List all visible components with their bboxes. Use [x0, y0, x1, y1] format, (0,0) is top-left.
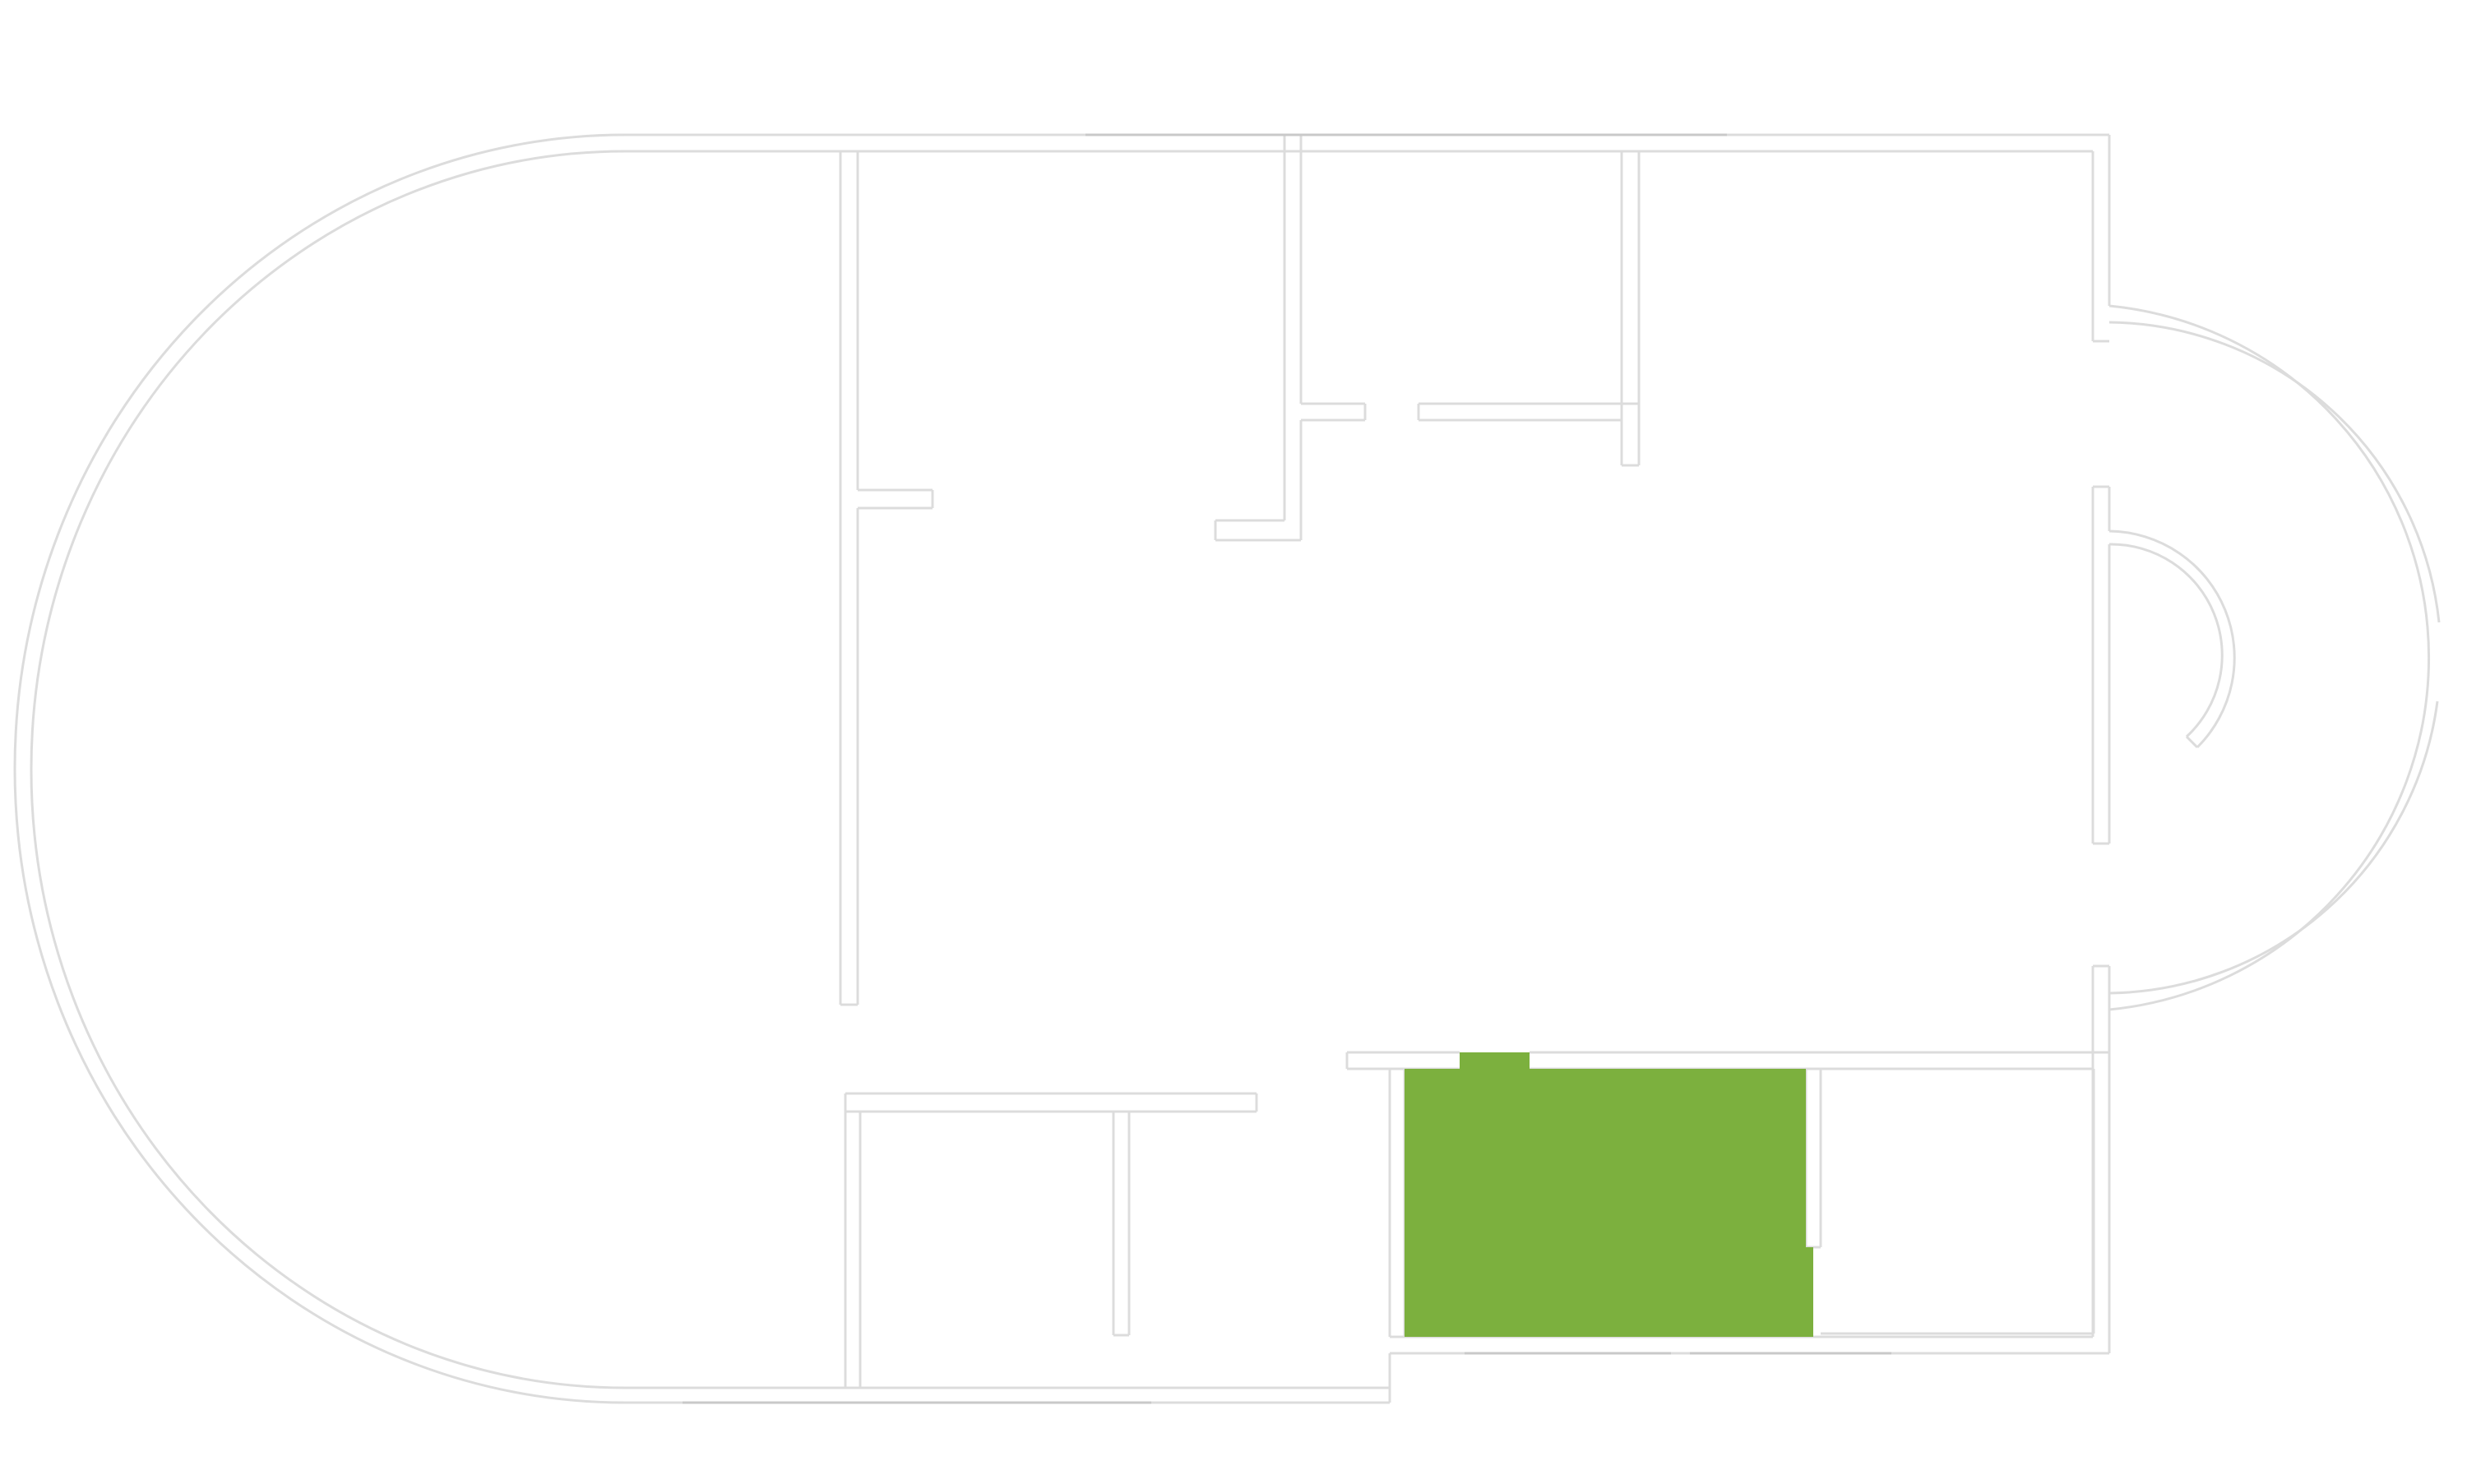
curved-wall-segment — [2187, 737, 2197, 747]
floor-plan-canvas — [0, 0, 2467, 1484]
curved-walls — [15, 135, 2439, 1403]
highlighted-room[interactable] — [1405, 1052, 1813, 1337]
curved-wall-segment — [2109, 306, 2429, 1010]
floor-plan-page — [0, 0, 2467, 1484]
curved-wall-segment — [2109, 544, 2222, 737]
curved-wall-segment — [2109, 322, 2439, 622]
curved-wall-segment — [15, 135, 625, 1403]
walls — [625, 135, 2109, 1403]
highlighted-room-layer — [1405, 1052, 1813, 1337]
curved-wall-segment — [31, 151, 625, 1388]
